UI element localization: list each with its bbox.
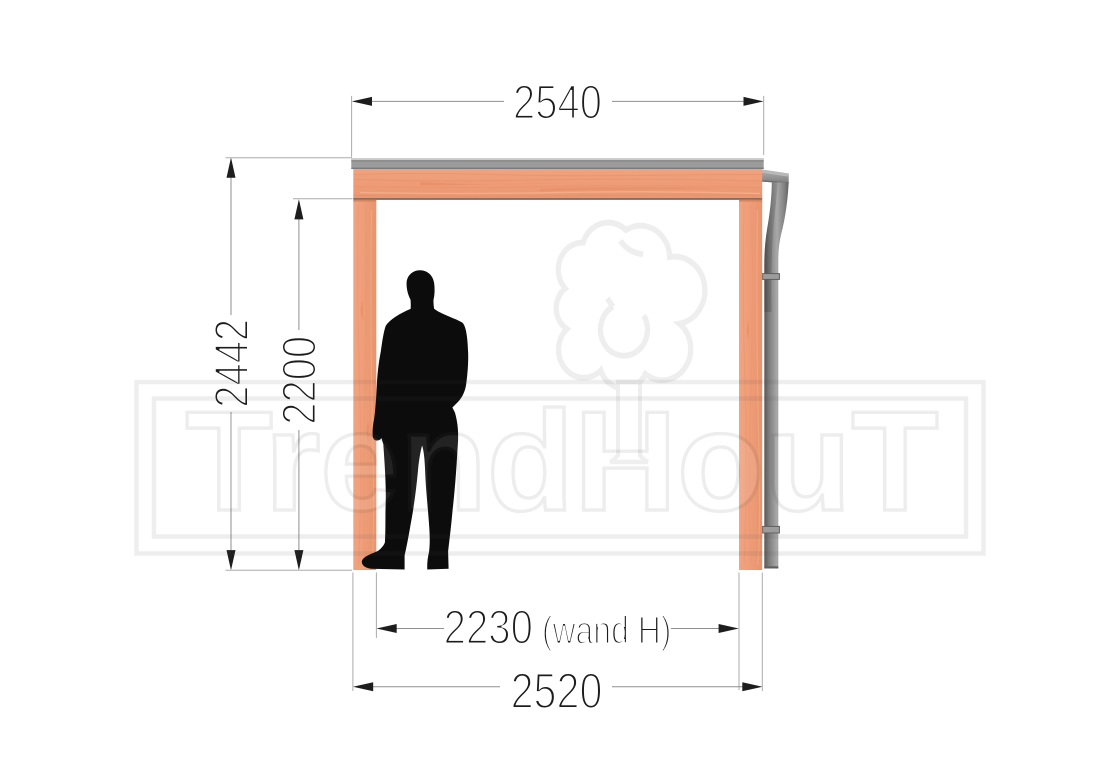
svg-text:TrendHouT: TrendHouT xyxy=(186,382,939,541)
svg-text:2540: 2540 xyxy=(513,76,602,129)
svg-text:2520: 2520 xyxy=(511,662,603,719)
svg-text:2230 (wand H): 2230 (wand H) xyxy=(444,601,672,654)
